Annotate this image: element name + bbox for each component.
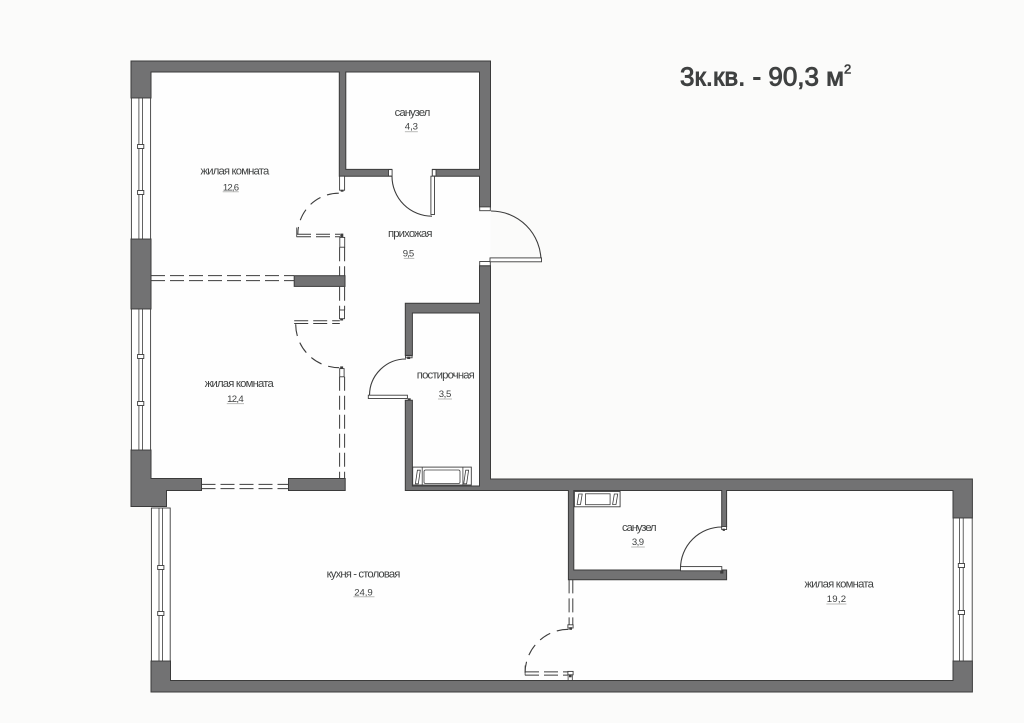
svg-text:3к.кв. - 90,3 м: 3к.кв. - 90,3 м — [680, 61, 844, 91]
svg-text:19,2: 19,2 — [827, 594, 846, 605]
svg-text:жилая комната: жилая комната — [201, 166, 270, 178]
svg-text:постирочная: постирочная — [417, 369, 475, 381]
svg-text:4,3: 4,3 — [405, 122, 418, 133]
svg-text:жилая комната: жилая комната — [205, 378, 275, 390]
svg-text:санузел: санузел — [395, 107, 431, 119]
svg-text:кухня - столовая: кухня - столовая — [327, 568, 401, 580]
svg-text:санузел: санузел — [622, 522, 657, 534]
svg-text:жилая комната: жилая комната — [804, 578, 874, 590]
svg-text:2: 2 — [844, 62, 851, 77]
svg-text:прихожая: прихожая — [388, 228, 433, 240]
